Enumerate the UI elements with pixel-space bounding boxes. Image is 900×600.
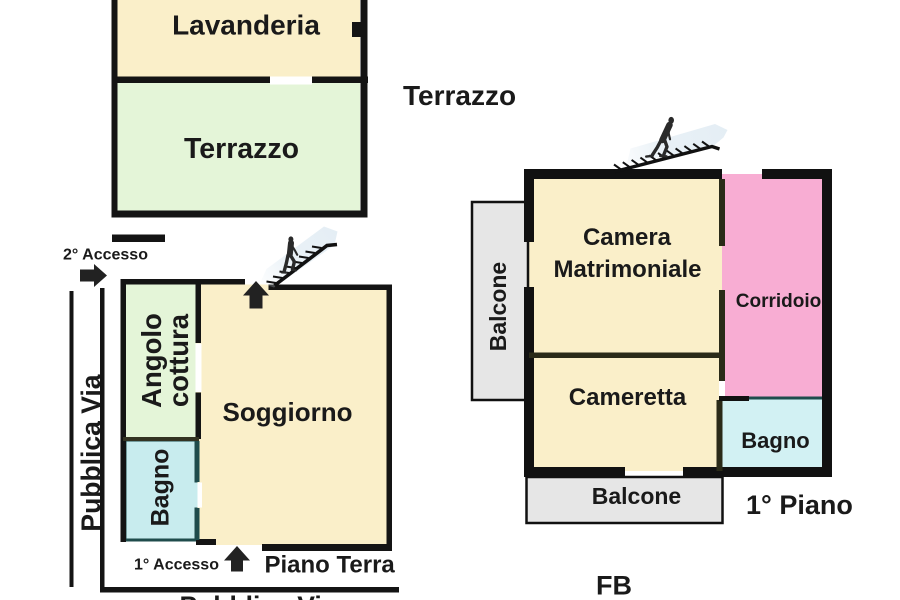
svg-text:Pubblica Via: Pubblica Via	[179, 591, 336, 600]
svg-text:Soggiorno: Soggiorno	[223, 397, 353, 427]
svg-text:Matrimoniale: Matrimoniale	[553, 256, 701, 283]
svg-text:Balcone: Balcone	[485, 262, 511, 351]
svg-text:Terrazzo: Terrazzo	[184, 133, 299, 165]
svg-text:Terrazzo: Terrazzo	[403, 80, 516, 111]
svg-text:1° Piano: 1° Piano	[746, 490, 853, 520]
svg-text:FB: FB	[596, 571, 632, 600]
svg-text:cottura: cottura	[163, 313, 194, 407]
svg-text:Bagno: Bagno	[147, 449, 175, 527]
svg-text:Piano Terra: Piano Terra	[265, 552, 396, 579]
svg-text:Camera: Camera	[583, 224, 672, 251]
svg-text:Corridoio: Corridoio	[736, 291, 822, 312]
svg-text:Bagno: Bagno	[741, 428, 809, 453]
svg-text:Balcone: Balcone	[592, 483, 681, 509]
svg-text:2° Accesso: 2° Accesso	[63, 247, 148, 264]
svg-text:1° Accesso: 1° Accesso	[134, 557, 219, 574]
svg-text:Lavanderia: Lavanderia	[172, 10, 320, 41]
svg-text:Cameretta: Cameretta	[569, 384, 687, 411]
